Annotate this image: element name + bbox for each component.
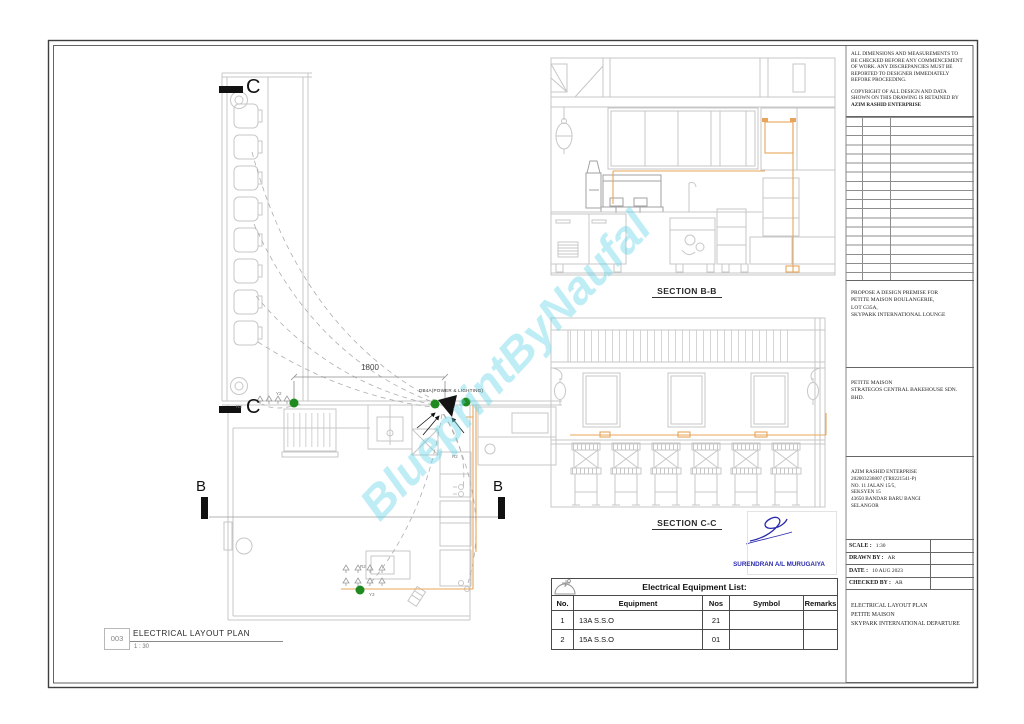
col-header-no: No. <box>552 596 574 611</box>
section-marker-b-left-label: B <box>196 478 206 495</box>
table-cell-remarks <box>804 611 837 630</box>
ceiling-lamp-icon <box>231 92 248 395</box>
title-block: ALL DIMENSIONS AND MEASUREMENTS TO BE CH… <box>846 45 974 683</box>
plan-scale: 1 : 30 <box>134 644 149 650</box>
drawn-by-row: DRAWN BY : AR <box>846 553 974 566</box>
db-label: DB4A(POWER & LIGHTING) <box>419 388 483 393</box>
drawing-info-rows: SCALE : 1:30 DRAWN BY : AR DATE : 10 AUG… <box>846 540 974 590</box>
date-label: DATE : <box>846 568 868 574</box>
circuit-tag: R2 <box>360 564 366 569</box>
socket-13a-symbol-icon <box>730 611 804 630</box>
revision-table <box>846 117 974 281</box>
table-cell-remarks <box>804 630 837 649</box>
drawn-by-label: DRAWN BY : <box>846 555 884 561</box>
dimension-1800 <box>291 374 448 399</box>
table-cell-no: 1 <box>552 611 574 630</box>
scale-label: SCALE : <box>846 543 872 549</box>
col-header-equipment: Equipment <box>574 596 703 611</box>
table-cell-no: 2 <box>552 630 574 649</box>
table-cell-equipment: 13A S.S.O <box>574 611 703 630</box>
copyright-text: COPYRIGHT OF ALL DESIGN AND DATA SHOWN O… <box>851 89 970 102</box>
date-value: 10 AUG 2023 <box>872 568 903 574</box>
circuit-tag: R3 <box>236 404 242 409</box>
project-description: PROPOSE A DESIGN PREMISE FOR PETITE MAIS… <box>846 281 974 368</box>
stamp-name: SURENDRAN A/L MURUGAIYA <box>718 561 840 568</box>
wall-lantern-icon <box>553 368 820 405</box>
col-header-nos: Nos <box>703 596 730 611</box>
circuit-tag: Y3 <box>369 592 375 597</box>
section-bb-label: SECTION B-B <box>652 286 722 298</box>
checked-by-value: AR <box>895 580 903 586</box>
circuit-tag: R2 <box>452 454 458 459</box>
wall-frames <box>583 373 788 427</box>
circuit-tag: Y2 <box>276 391 282 396</box>
client-name: PETITE MAISON STRATEGOS CENTRAL BAKEHOUS… <box>846 368 974 457</box>
consultant-details: AZIM RASHID ENTERPRISE 202003236807 (TR0… <box>846 457 974 540</box>
scale-row: SCALE : 1:30 <box>846 540 974 553</box>
section-cc-drawing <box>551 318 826 507</box>
col-header-remarks: Remarks <box>804 596 837 611</box>
equipment-table-title: Electrical Equipment List: <box>552 579 837 596</box>
drawing-title: ELECTRICAL LAYOUT PLAN PETITE MAISON SKY… <box>846 590 974 683</box>
table-cell-nos: 01 <box>703 630 730 649</box>
table-cell-nos: 21 <box>703 611 730 630</box>
plan-chairs <box>234 104 262 345</box>
date-row: DATE : 10 AUG 2023 <box>846 565 974 578</box>
copyright-owner: AZIM RASHID ENTERPRISE <box>851 102 970 109</box>
table-cell-equipment: 15A S.S.O <box>574 630 703 649</box>
plan-number-box: 003 <box>104 628 130 650</box>
col-header-symbol: Symbol <box>730 596 804 611</box>
socket-15a-symbol-icon <box>730 630 804 649</box>
drawing-sheet: BlueprintByNaufal C C B B 1800 DB4A(POWE… <box>0 0 1024 724</box>
section-cc-label: SECTION C-C <box>652 518 722 530</box>
scale-value: 1:30 <box>876 543 886 549</box>
section-marker-c-top-label: C <box>246 76 260 99</box>
plan-title-underline <box>130 641 283 642</box>
plan-title: ELECTRICAL LAYOUT PLAN <box>133 629 250 638</box>
notes-text: ALL DIMENSIONS AND MEASUREMENTS TO BE CH… <box>851 51 970 84</box>
pendant-lamp-icon <box>556 107 572 154</box>
drawn-by-value: AR <box>888 555 896 561</box>
checked-by-row: CHECKED BY : AR <box>846 578 974 591</box>
section-marker-c-bottom-label: C <box>246 396 260 419</box>
dimension-label: 1800 <box>340 363 400 372</box>
checked-by-label: CHECKED BY : <box>846 580 891 586</box>
electrical-equipment-table: Electrical Equipment List: No. Equipment… <box>551 578 838 650</box>
bar-stools <box>571 443 801 505</box>
section-marker-b-right-label: B <box>493 478 503 495</box>
title-block-notes: ALL DIMENSIONS AND MEASUREMENTS TO BE CH… <box>846 45 974 117</box>
